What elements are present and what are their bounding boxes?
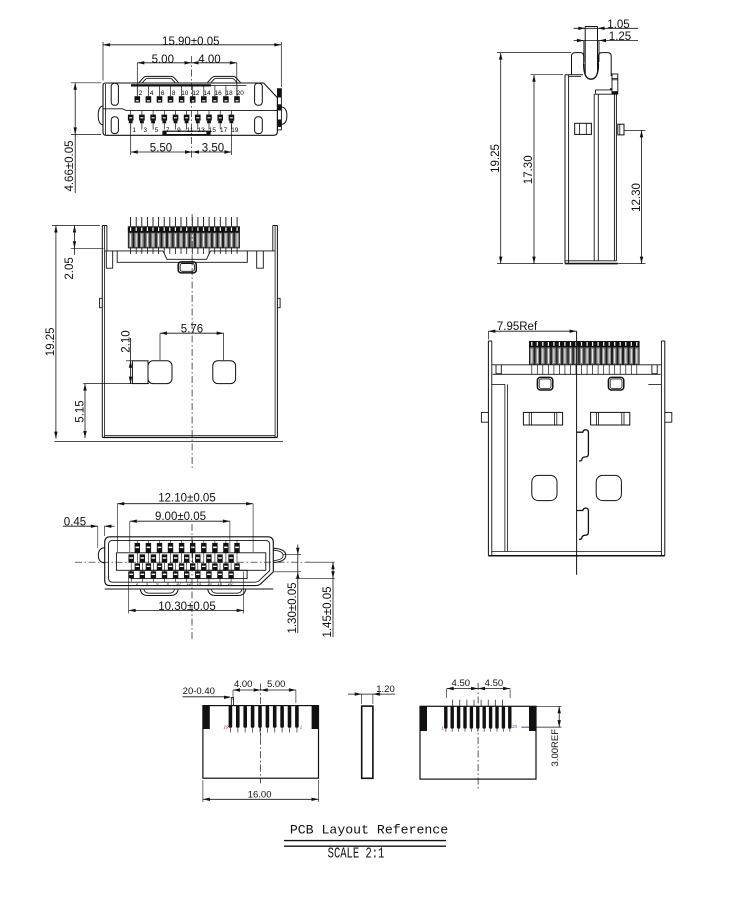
svg-text:12.10±0.05: 12.10±0.05	[158, 493, 215, 505]
svg-text:5.76: 5.76	[181, 323, 203, 335]
svg-text:12: 12	[192, 90, 200, 97]
svg-text:20: 20	[228, 581, 233, 586]
svg-text:1: 1	[132, 127, 136, 134]
svg-text:14: 14	[197, 581, 202, 586]
svg-text:5.50: 5.50	[150, 143, 172, 155]
svg-text:1.45±0.05: 1.45±0.05	[322, 586, 334, 637]
svg-text:10: 10	[181, 90, 189, 97]
svg-text:4: 4	[150, 90, 154, 97]
svg-text:5.00: 5.00	[152, 54, 174, 66]
svg-text:4.00: 4.00	[198, 54, 220, 66]
svg-text:PCB Layout Reference: PCB Layout Reference	[290, 823, 448, 838]
svg-text:8: 8	[172, 90, 176, 97]
svg-text:19: 19	[223, 725, 229, 730]
svg-text:9: 9	[177, 127, 181, 134]
svg-text:17: 17	[220, 127, 228, 134]
svg-text:20-0.40: 20-0.40	[183, 686, 215, 697]
svg-text:4.66±0.05: 4.66±0.05	[64, 140, 76, 191]
svg-text:16.00: 16.00	[248, 789, 272, 800]
svg-text:1: 1	[441, 726, 444, 731]
svg-text:18: 18	[217, 581, 222, 586]
svg-text:4.50: 4.50	[452, 678, 471, 689]
svg-text:4.00: 4.00	[234, 679, 253, 690]
svg-text:2: 2	[139, 90, 143, 97]
svg-text:0.45: 0.45	[64, 517, 86, 529]
svg-text:5.15: 5.15	[75, 400, 87, 422]
svg-text:3.50: 3.50	[202, 143, 224, 155]
svg-text:1.05: 1.05	[607, 19, 629, 31]
svg-text:19.25: 19.25	[490, 144, 502, 173]
svg-text:1: 1	[300, 725, 303, 730]
svg-text:3: 3	[144, 127, 148, 134]
svg-text:20: 20	[237, 90, 245, 97]
svg-text:14: 14	[203, 90, 211, 97]
svg-text:12: 12	[186, 581, 191, 586]
svg-text:3.00REF: 3.00REF	[550, 729, 561, 767]
svg-text:19: 19	[231, 127, 239, 134]
svg-text:11: 11	[187, 127, 194, 134]
svg-text:19.25: 19.25	[45, 327, 57, 356]
svg-text:12.30: 12.30	[631, 183, 643, 212]
svg-text:1.30±0.05: 1.30±0.05	[287, 582, 299, 633]
svg-text:5: 5	[155, 127, 159, 134]
svg-text:16: 16	[215, 90, 223, 97]
svg-text:6: 6	[161, 90, 165, 97]
svg-text:10: 10	[176, 581, 181, 586]
svg-text:5.00: 5.00	[267, 679, 286, 690]
svg-text:SCALE 2:1: SCALE 2:1	[328, 845, 385, 862]
svg-text:2.05: 2.05	[64, 257, 76, 279]
svg-text:13: 13	[198, 127, 206, 134]
svg-text:2.10: 2.10	[120, 330, 132, 352]
svg-text:16: 16	[207, 581, 212, 586]
svg-text:17.30: 17.30	[523, 155, 535, 184]
svg-text:18: 18	[226, 90, 234, 97]
svg-text:20: 20	[511, 724, 518, 729]
svg-text:1.25: 1.25	[609, 31, 631, 43]
svg-text:4.50: 4.50	[485, 678, 504, 689]
svg-text:15.90±0.05: 15.90±0.05	[162, 36, 219, 48]
svg-text:10.30±0.05: 10.30±0.05	[158, 601, 215, 613]
